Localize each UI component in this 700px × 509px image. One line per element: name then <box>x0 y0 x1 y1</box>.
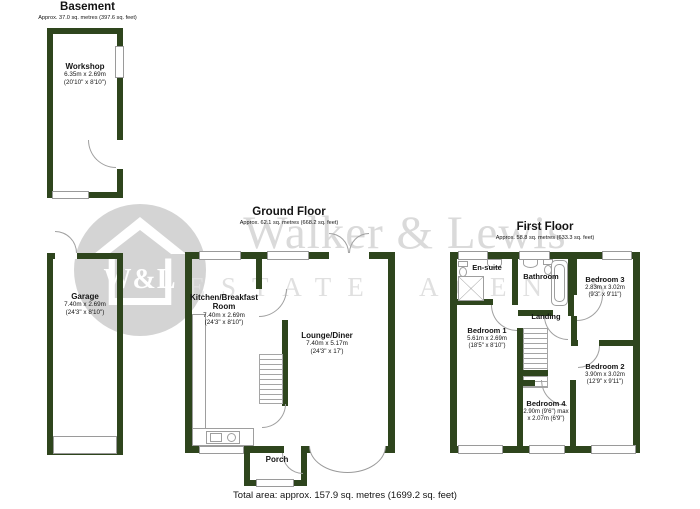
workshop-label: Workshop 6.35m x 2.69m (20'10" x 8'10") <box>49 62 121 86</box>
room-dims-imperial: (24'3" x 8'10") <box>182 319 266 326</box>
room-name: Porch <box>247 455 307 464</box>
room-dims-metric: 2.83m x 3.02m <box>572 285 638 292</box>
window <box>267 251 309 260</box>
sink <box>523 259 538 268</box>
room-dims-metric: 7.40m x 2.69m <box>47 301 123 308</box>
room-name: Kitchen/Breakfast Room <box>182 293 266 312</box>
room-name: Bathroom <box>512 273 570 282</box>
door-opening <box>116 140 124 169</box>
bedroom4-label: Bedroom 4 2.90m (9'6") max x 2.07m (6'9"… <box>511 400 581 423</box>
total-area-text: Total area: approx. 157.9 sq. metres (16… <box>95 490 595 501</box>
bedroom1-label: Bedroom 1 5.61m x 2.69m (18'5" x 8'10") <box>453 327 521 350</box>
room-dims-imperial: (20'10" x 8'10") <box>49 79 121 86</box>
door-arc <box>55 231 77 253</box>
landing-label: Landing <box>515 313 577 322</box>
workshop-room <box>47 28 123 198</box>
window <box>458 445 503 454</box>
bedroom3-label: Bedroom 3 2.83m x 3.02m (9'3" x 9'11") <box>572 276 638 299</box>
bathroom-label: Bathroom <box>512 273 570 282</box>
door-opening <box>284 446 301 453</box>
porch-label: Porch <box>247 455 307 464</box>
first-floor-subtitle: Approx. 58.8 sq. metres (633.3 sq. feet) <box>456 235 634 241</box>
window <box>458 251 488 260</box>
lounge-label: Lounge/Diner 7.40m x 5.17m (24'3" x 17') <box>275 331 379 355</box>
room-name: Bedroom 2 <box>570 363 640 372</box>
wall-segment <box>523 380 535 386</box>
garage-label: Garage 7.40m x 2.69m (24'3" x 8'10") <box>47 292 123 316</box>
room-dims-imperial: x 2.07m (6'9") <box>511 416 581 423</box>
door-opening <box>55 253 77 259</box>
room-dims-metric: 7.40m x 5.17m <box>275 340 379 347</box>
first-floor-title: First Floor <box>456 221 634 234</box>
french-door-opening <box>329 252 369 259</box>
room-dims-imperial: (24'3" x 8'10") <box>47 309 123 316</box>
ground-floor-title: Ground Floor <box>200 206 378 219</box>
basement-subtitle: Approx. 37.0 sq. metres (397.6 sq. feet) <box>10 15 165 21</box>
room-name: Workshop <box>49 62 121 71</box>
kitchen-counter <box>192 314 206 430</box>
window <box>591 445 636 454</box>
wall-segment <box>256 259 262 289</box>
room-name: Landing <box>515 313 577 322</box>
room-dims-metric: 2.90m (9'6") max <box>511 409 581 416</box>
sink-basin <box>227 433 236 442</box>
ground-floor-subtitle: Approx. 62.1 sq. metres (668.2 sq. feet) <box>200 220 378 226</box>
window <box>199 251 241 260</box>
bathtub-inner <box>554 264 565 302</box>
floor-plan: W&L Walker & Lewis ESTATE AGENTS Basemen… <box>0 0 700 509</box>
kitchen-label: Kitchen/Breakfast Room 7.40m x 2.69m (24… <box>182 293 266 327</box>
room-dims-imperial: (24'3" x 17') <box>275 348 379 355</box>
room-name: Garage <box>47 292 123 301</box>
room-dims-imperial: (18'5" x 8'10") <box>453 343 521 350</box>
first-floor-header: First Floor Approx. 58.8 sq. metres (633… <box>456 221 634 241</box>
room-dims-metric: 6.35m x 2.69m <box>49 71 121 78</box>
garage-door <box>53 436 117 454</box>
window <box>199 446 244 454</box>
window <box>256 479 294 487</box>
ensuite-label: En-suite <box>460 264 514 273</box>
room-name: Bedroom 4 <box>511 400 581 409</box>
room-dims-imperial: (9'3" x 9'11") <box>572 292 638 299</box>
room-name: Bedroom 3 <box>572 276 638 285</box>
room-name: En-suite <box>460 264 514 273</box>
basement-header: Basement Approx. 37.0 sq. metres (397.6 … <box>10 1 165 21</box>
window <box>519 251 550 260</box>
room-dims-metric: 3.90m x 3.02m <box>570 372 640 379</box>
garage-room <box>47 253 123 455</box>
room-name: Lounge/Diner <box>275 331 379 340</box>
bedroom2-label: Bedroom 2 3.90m x 3.02m (12'9" x 9'11") <box>570 363 640 386</box>
room-name: Bedroom 1 <box>453 327 521 336</box>
shower-tray <box>458 276 484 301</box>
room-dims-metric: 5.61m x 2.69m <box>453 336 521 343</box>
staircase <box>523 328 548 372</box>
room-dims-imperial: (12'9" x 9'11") <box>570 379 640 386</box>
room-dims-metric: 7.40m x 2.69m <box>182 312 266 319</box>
sink-basin <box>210 433 222 442</box>
ground-floor-header: Ground Floor Approx. 62.1 sq. metres (66… <box>200 206 378 226</box>
window <box>602 251 632 260</box>
basement-title: Basement <box>10 1 165 14</box>
window <box>529 445 565 454</box>
staircase <box>259 354 283 404</box>
bay-window <box>309 446 386 473</box>
window <box>52 191 89 199</box>
